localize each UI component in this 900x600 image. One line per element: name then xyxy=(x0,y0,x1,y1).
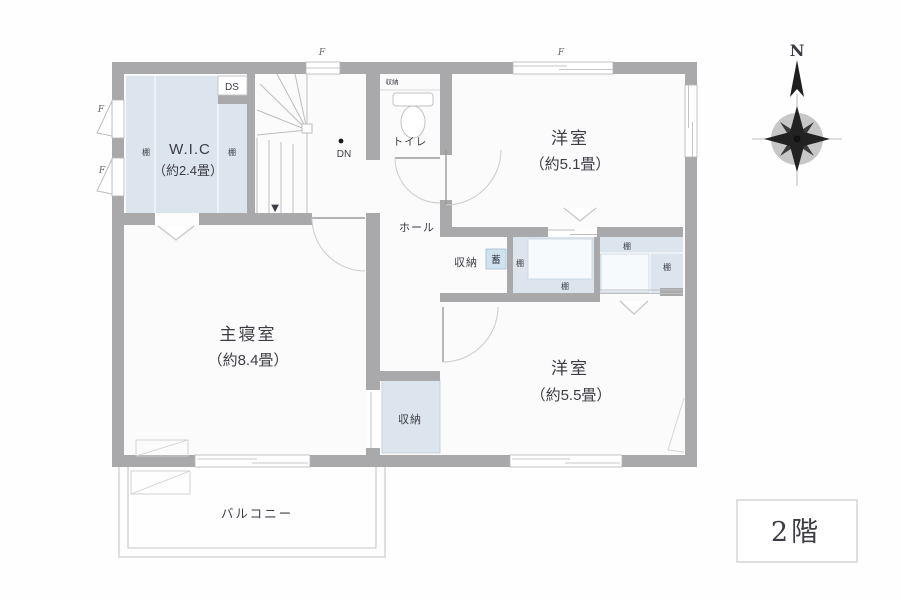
wic-size: （約2.4畳） xyxy=(153,163,223,178)
north-label: N xyxy=(790,41,805,60)
toilet-shelf-label: 収納 xyxy=(386,77,399,86)
fix-window-label: F xyxy=(557,48,565,58)
window-bottom-west2 xyxy=(510,455,622,467)
wall-hall-storage xyxy=(366,371,440,381)
shelf-label: 棚 xyxy=(623,241,631,251)
closet-a xyxy=(512,230,594,293)
battery-label: 蓄 xyxy=(491,254,501,266)
closet-b xyxy=(600,230,683,293)
stairs-down-marker: ▼ xyxy=(269,200,282,215)
fix-window-label: F xyxy=(98,166,106,176)
fix-window-label: F xyxy=(97,105,105,115)
master-size: （約8.4畳） xyxy=(208,352,289,369)
dn-label: DN xyxy=(337,149,351,160)
window-left-casement-2 xyxy=(97,158,124,196)
window-balcony-door xyxy=(195,455,310,467)
balcony-label: バルコニー xyxy=(221,507,293,521)
west1-size: （約5.1畳） xyxy=(530,156,611,173)
master-name: 主寝室 xyxy=(220,324,277,344)
wall-closetb-stub xyxy=(660,288,683,296)
wall-closets-west2 xyxy=(440,293,600,302)
wall-wic-bedroom xyxy=(124,213,312,225)
compass-rose: N xyxy=(752,41,842,186)
toilet-label: トイレ xyxy=(393,136,428,148)
ds-label: DS xyxy=(225,82,239,93)
floor-plan-page: ▼ 2階 N W.I.C （約2.4畳） 棚 棚 DS DN 収納 トイレ ホー… xyxy=(0,0,900,600)
fix-window-label: F xyxy=(318,48,326,58)
dn-dot xyxy=(339,139,344,144)
shelf-label: 棚 xyxy=(663,262,671,272)
shelf-label: 棚 xyxy=(228,147,236,157)
floor-badge: 2階 xyxy=(737,500,857,562)
north-arrow xyxy=(790,60,804,97)
west1-name: 洋室 xyxy=(551,129,589,148)
window-top-small xyxy=(306,62,340,74)
floor-plan: ▼ 2階 N W.I.C （約2.4畳） 棚 棚 DS DN 収納 トイレ ホー… xyxy=(0,0,900,600)
wall-wic-stairs xyxy=(247,74,255,213)
hall-storage-label: 収納 xyxy=(454,256,478,269)
wall-toilet-right xyxy=(440,62,452,155)
window-top-large xyxy=(513,62,613,74)
bedroom-storage-label: 収納 xyxy=(398,413,422,426)
west2-size: （約5.5畳） xyxy=(531,387,612,404)
shelf-label: 棚 xyxy=(516,258,524,268)
wall-toilet-left xyxy=(366,62,380,160)
wic-name: W.I.C xyxy=(169,141,211,158)
hall-label: ホール xyxy=(399,221,435,234)
wall-ds-bottom xyxy=(218,95,247,104)
floor-badge-label: 2階 xyxy=(771,517,821,548)
west2-name: 洋室 xyxy=(551,359,589,378)
window-right xyxy=(685,85,697,157)
shelf-label: 棚 xyxy=(142,147,150,157)
wall-storage-closeta xyxy=(507,237,513,293)
shelf-label: 棚 xyxy=(561,281,569,291)
